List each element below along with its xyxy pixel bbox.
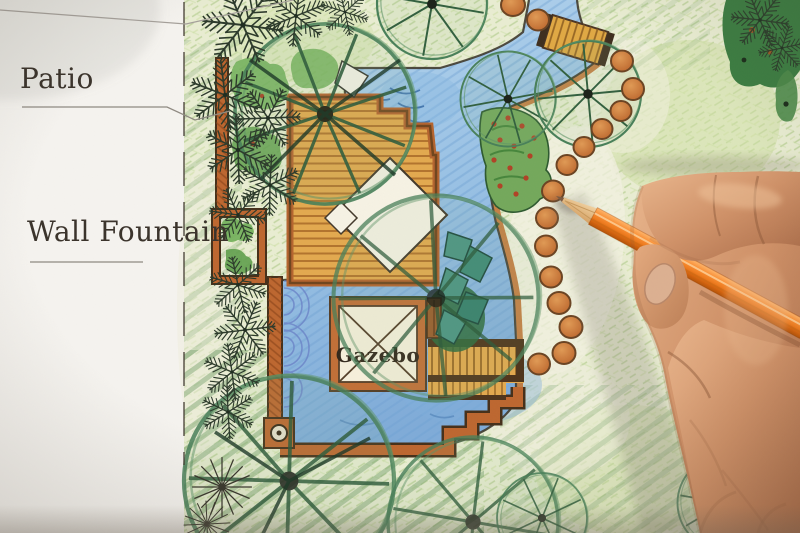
landscape-plan-photo: Gazebo (0, 0, 800, 533)
photo-noise (0, 0, 800, 533)
plan-photo-svg: Gazebo (0, 0, 800, 533)
